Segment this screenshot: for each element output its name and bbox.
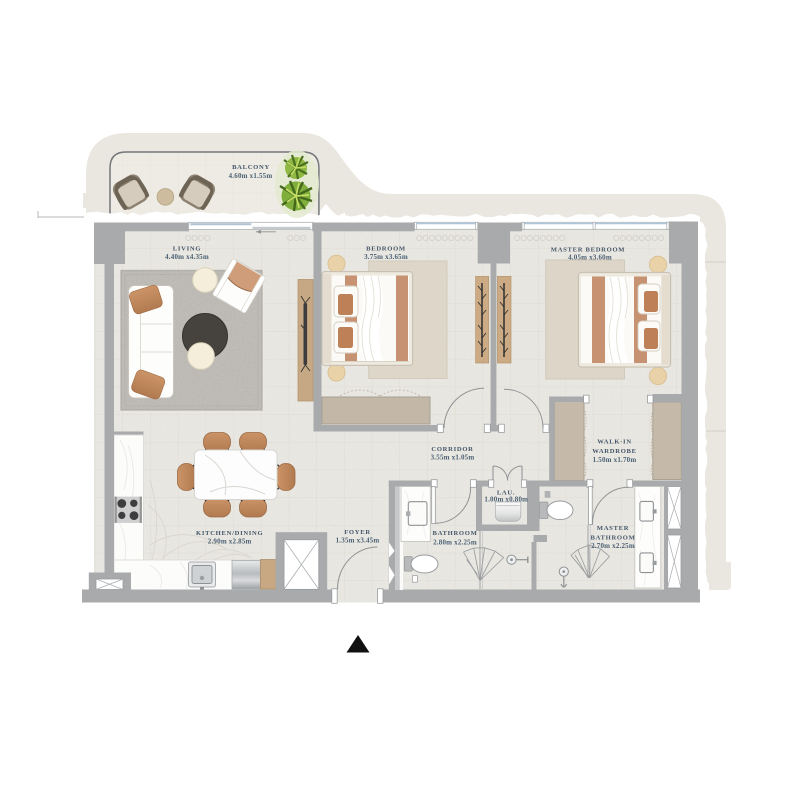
svg-text:CORRIDOR: CORRIDOR bbox=[431, 446, 473, 453]
svg-text:MASTER: MASTER bbox=[597, 525, 629, 532]
svg-text:1.00m x0.80m: 1.00m x0.80m bbox=[484, 496, 528, 504]
svg-text:2.70m x2.25m: 2.70m x2.25m bbox=[591, 542, 635, 550]
svg-text:BEDROOM: BEDROOM bbox=[366, 246, 406, 253]
svg-text:BATHROOM: BATHROOM bbox=[432, 530, 477, 537]
svg-text:KITCHEN/DINING: KITCHEN/DINING bbox=[196, 530, 263, 537]
svg-text:1.50m x1.70m: 1.50m x1.70m bbox=[593, 456, 637, 464]
svg-text:MASTER BEDROOM: MASTER BEDROOM bbox=[551, 247, 626, 254]
svg-text:2.90m x2.85m: 2.90m x2.85m bbox=[208, 538, 252, 546]
svg-text:3.75m x3.65m: 3.75m x3.65m bbox=[364, 253, 408, 261]
svg-text:3.55m x1.05m: 3.55m x1.05m bbox=[431, 454, 475, 462]
svg-text:WALK-IN: WALK-IN bbox=[597, 439, 632, 446]
svg-text:4.40m x4.35m: 4.40m x4.35m bbox=[165, 253, 209, 261]
svg-text:4.05m x3.60m: 4.05m x3.60m bbox=[568, 254, 612, 262]
svg-text:2.80m x2.25m: 2.80m x2.25m bbox=[433, 539, 477, 547]
svg-text:BALCONY: BALCONY bbox=[232, 164, 270, 171]
svg-text:4.60m x1.55m: 4.60m x1.55m bbox=[229, 172, 273, 180]
svg-text:BATHROOM: BATHROOM bbox=[590, 535, 635, 542]
svg-text:FOYER: FOYER bbox=[344, 529, 371, 536]
svg-text:WARDROBE: WARDROBE bbox=[592, 448, 636, 455]
svg-text:1.35m x3.45m: 1.35m x3.45m bbox=[336, 537, 380, 545]
svg-text:LIVING: LIVING bbox=[173, 246, 201, 253]
